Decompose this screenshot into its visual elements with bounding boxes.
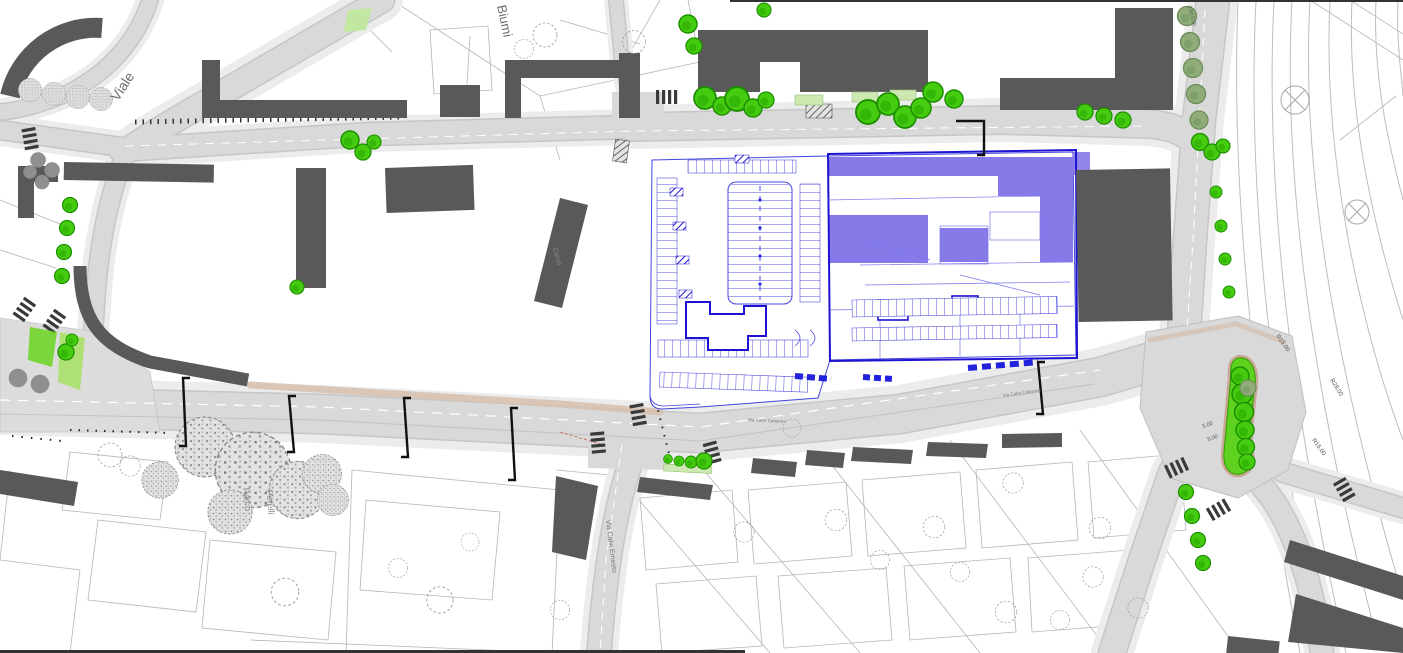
parking-hatch — [806, 104, 832, 118]
zebra-crossing — [1206, 498, 1231, 521]
tree-icon — [696, 453, 712, 469]
tree-icon — [514, 39, 533, 58]
parcel-outline — [346, 470, 560, 653]
tree-icon — [664, 455, 673, 464]
parcel-outline — [862, 472, 966, 556]
parking-center-island — [728, 182, 792, 304]
parcel-outline — [360, 500, 500, 600]
zebra-crossing — [656, 90, 677, 104]
tree-icon — [1238, 439, 1255, 456]
tree-icon — [55, 269, 70, 284]
parcel-outline — [778, 568, 892, 648]
tree-icon — [1216, 139, 1230, 153]
tree-icon — [950, 562, 969, 581]
rail-line — [1398, 0, 1403, 96]
parcel-outline — [976, 462, 1078, 548]
tree-icon — [30, 152, 45, 167]
parking-hatch — [613, 139, 630, 163]
tree-icon — [1096, 108, 1112, 124]
tree-icon — [1077, 104, 1093, 120]
tree-icon — [427, 587, 453, 613]
building-top-center — [698, 30, 928, 92]
tree-icon — [1003, 473, 1023, 493]
tree-icon — [1223, 286, 1235, 298]
building-block — [440, 85, 480, 117]
tree-icon — [911, 98, 931, 118]
tree-icon — [18, 78, 41, 101]
tree-icon — [317, 484, 348, 515]
tree-icon — [290, 280, 304, 294]
tree-icon — [1235, 403, 1254, 422]
building-block — [385, 165, 475, 213]
tree-icon — [63, 198, 78, 213]
tree-icon — [1191, 533, 1206, 548]
tree-icon — [341, 131, 359, 149]
parcel-outline — [748, 482, 852, 564]
tree-icon — [1185, 509, 1200, 524]
turntable-icon — [1345, 200, 1369, 224]
tree-icon — [1187, 85, 1206, 104]
tree-icon — [1181, 33, 1200, 52]
tree-icon — [679, 15, 697, 33]
tree-icon — [1236, 421, 1254, 439]
tree-icon — [1179, 485, 1194, 500]
building-caroli-slab — [534, 198, 588, 308]
turntable-icon — [1281, 86, 1309, 114]
perelli-label: Perelli — [264, 489, 277, 515]
biumi-label: Biumi — [494, 4, 515, 39]
tree-icon — [31, 375, 49, 393]
tree-icon — [1215, 220, 1227, 232]
grass-patch — [28, 327, 57, 367]
building-block — [552, 476, 598, 560]
tree-icon — [66, 85, 89, 108]
zebra-crossing — [13, 297, 37, 322]
tree-icon — [1083, 567, 1103, 587]
tree-icon — [1184, 59, 1203, 78]
tree-icon — [757, 3, 771, 17]
parcel-outline — [392, 0, 700, 96]
tree-icon — [1115, 112, 1131, 128]
junction-plaza-center — [588, 414, 670, 470]
parcel-outline — [88, 520, 206, 612]
tree-icon — [35, 175, 49, 189]
building-east-block — [1076, 168, 1173, 322]
tree-icon — [1219, 253, 1231, 265]
tree-icon — [1240, 380, 1256, 396]
parcel-outline — [1310, 0, 1403, 140]
building-biumi-block — [505, 53, 640, 118]
tree-icon — [1196, 556, 1211, 571]
tree-icon — [945, 90, 963, 108]
tree-icon — [271, 578, 299, 606]
r15-bottom-label: R15,00 — [1310, 438, 1326, 458]
tree-icon — [44, 162, 59, 177]
rail-line — [1351, 0, 1403, 320]
tree-icon — [674, 456, 684, 466]
tree-icon — [685, 456, 697, 468]
parcel-outline — [202, 540, 560, 653]
tree-icon — [42, 82, 65, 105]
tree-icon — [367, 135, 381, 149]
tree-icon — [60, 221, 75, 236]
tree-icon — [388, 558, 407, 577]
tree-icon — [533, 23, 557, 47]
tree-icon — [870, 550, 889, 569]
rail-line — [1376, 0, 1403, 200]
tree-icon — [1190, 111, 1208, 129]
bollard-row — [12, 436, 62, 441]
tree-icon — [23, 165, 36, 178]
tree-icon — [550, 600, 569, 619]
tree-icon — [1050, 610, 1069, 629]
site-plan-canvas: VialeBiumiCaroliVia Calvi ErnestoVia Car… — [0, 0, 1403, 653]
tree-icon — [57, 245, 72, 260]
tree-icon — [66, 334, 78, 346]
tree-icon — [758, 92, 774, 108]
building-block — [0, 470, 78, 506]
tree-icon — [9, 369, 27, 387]
tree-icon — [461, 533, 479, 551]
site-plan-drawing: VialeBiumiCaroliVia Calvi ErnestoVia Car… — [0, 0, 1403, 653]
building-top-right — [1000, 8, 1173, 110]
tree-icon — [1089, 517, 1111, 539]
tree-icon — [686, 38, 702, 54]
tree-icon — [142, 462, 178, 498]
tree-icon — [923, 516, 945, 538]
tree-icon — [1239, 454, 1255, 470]
tree-icon — [825, 509, 847, 531]
r28-label: R28,00 — [1328, 378, 1344, 398]
tree-icon — [1210, 186, 1222, 198]
planting-bed — [795, 95, 823, 105]
parcel-outline — [656, 576, 762, 653]
